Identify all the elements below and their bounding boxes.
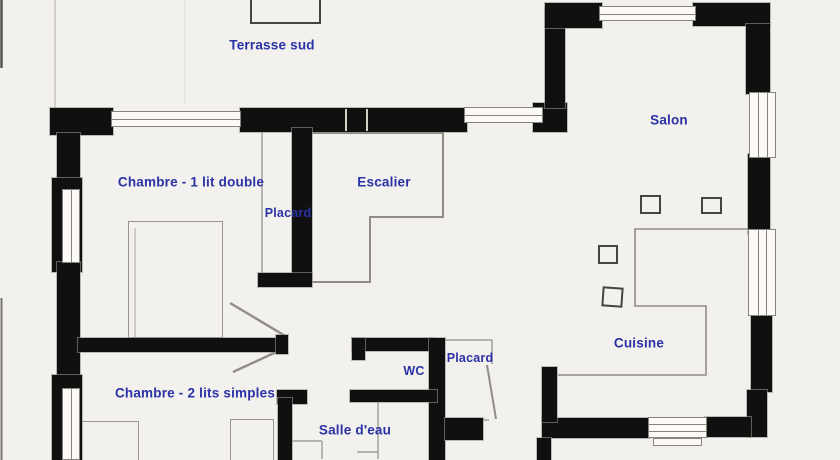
window-mullion (758, 230, 759, 315)
window-kitchen-east (748, 229, 776, 316)
window-mullion (600, 14, 695, 15)
window-mullion (766, 230, 767, 315)
window-west-bedroom1 (62, 189, 80, 263)
wall-east-lower (751, 312, 772, 392)
wall-wc-top-stub (352, 338, 365, 360)
room-label-cuisine: Cuisine (614, 336, 664, 351)
wall-west-upper (57, 133, 80, 183)
window-mullion (767, 93, 768, 157)
room-label-placard2: Placard (447, 351, 494, 365)
room-label-terrasse: Terrasse sud (229, 38, 314, 53)
wall-kitchen-west-return (542, 367, 557, 422)
wall-bottom-left-of-door (542, 418, 650, 438)
room-label-salle-eau: Salle d'eau (319, 423, 391, 438)
window-salon-south (599, 6, 696, 21)
window-mullion (465, 115, 542, 116)
wall-salon-east-upper (746, 24, 770, 94)
wall-southwest-corner (50, 108, 113, 135)
wall-west-middle (57, 262, 80, 378)
door-line (649, 424, 706, 425)
wall-joint (366, 109, 368, 131)
wall-bathroom-west (278, 398, 292, 460)
room-label-chambre1: Chambre - 1 lit double (118, 175, 264, 190)
room-label-chambre2: Chambre - 2 lits simples (115, 386, 275, 401)
room-label-placard1: Placard (265, 206, 312, 220)
wall-door-jamb (276, 335, 288, 354)
window-west-bedroom2 (62, 388, 80, 460)
kitchen-counter-outline (558, 229, 750, 375)
room-label-salon: Salon (650, 113, 688, 128)
window-mullion (71, 190, 72, 262)
wall-east-middle (748, 154, 770, 234)
wall-hall-stub (537, 438, 551, 460)
wall-joint (345, 109, 347, 131)
floor-plan: Terrasse sud Chambre - 1 lit double Esca… (0, 0, 840, 460)
window-south-bedroom1 (111, 111, 241, 127)
wall-closet-divider (292, 128, 312, 280)
wall-bottom-right (705, 417, 751, 437)
entry-door (648, 417, 707, 438)
wall-salon-northwest (545, 3, 602, 28)
window-mullion (112, 119, 240, 120)
wall-bedroom-divider (78, 338, 279, 352)
window-mullion (758, 93, 759, 157)
entry-step (653, 438, 702, 446)
wall-corridor-stub (445, 418, 483, 440)
door-line (649, 431, 706, 432)
room-label-escalier: Escalier (357, 175, 410, 190)
wall-bathroom-topright (350, 390, 437, 402)
room-label-wc: WC (403, 364, 424, 378)
window-south-hall (464, 107, 543, 123)
staircase-outline (312, 133, 443, 282)
wall-closet-cap (258, 273, 312, 287)
wall-salon-northeast (693, 3, 770, 26)
hall-closet-door-line (487, 365, 496, 419)
wall-south-middle (240, 108, 467, 132)
window-mullion (71, 389, 72, 459)
window-salon-east (749, 92, 776, 158)
